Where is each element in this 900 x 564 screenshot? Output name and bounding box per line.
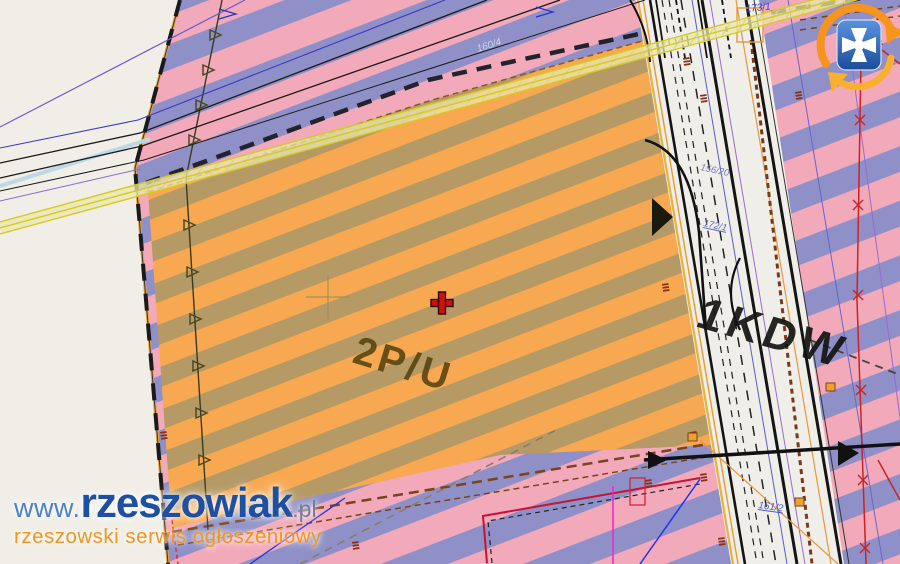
watermark-tagline: rzeszowski serwis ogłoszeniowy bbox=[14, 527, 322, 548]
watermark-tld: .pl bbox=[292, 496, 316, 522]
watermark: www.rzeszowiak.pl rzeszowski serwis ogło… bbox=[14, 482, 322, 548]
watermark-site: www.rzeszowiak.pl bbox=[14, 482, 322, 524]
zoning-map-viewport[interactable]: 2P/U 1KDW 173/1 156/20 172/1 161/2 160/4… bbox=[0, 0, 900, 564]
watermark-www: www. bbox=[14, 493, 81, 523]
watermark-name: rzeszowiak bbox=[81, 479, 293, 526]
